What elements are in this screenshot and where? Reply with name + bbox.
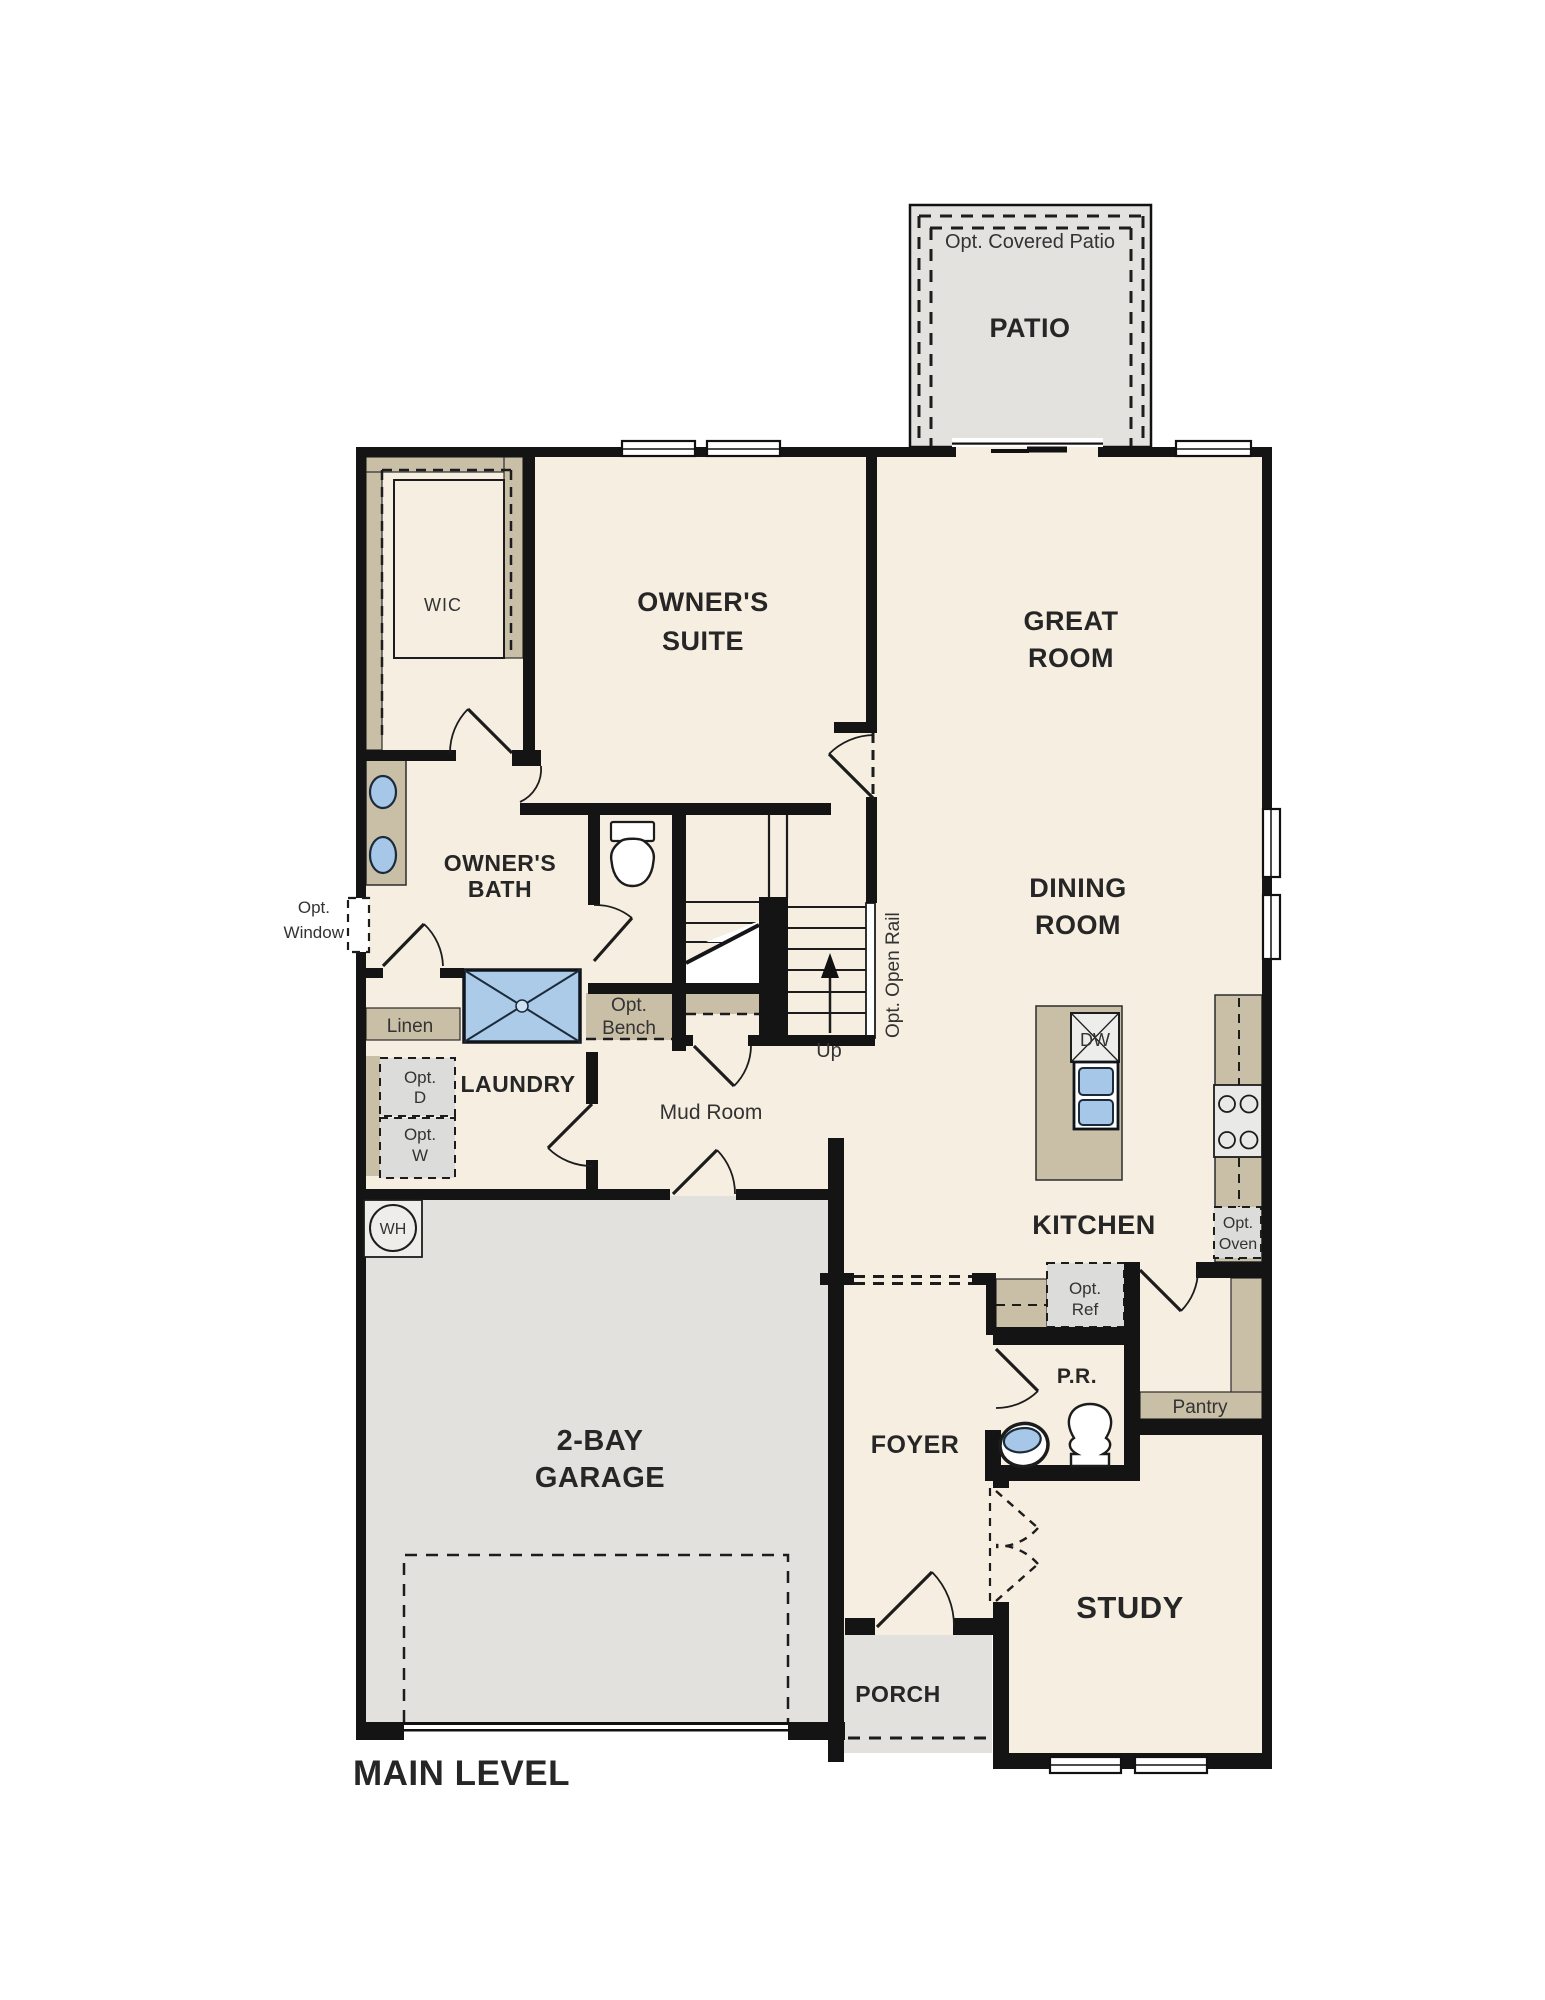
svg-text:Up: Up <box>816 1040 842 1062</box>
svg-text:WIC: WIC <box>424 595 462 615</box>
svg-text:Opt. Open Rail: Opt. Open Rail <box>883 912 904 1038</box>
svg-text:LAUNDRY: LAUNDRY <box>460 1071 575 1097</box>
svg-text:Opt.: Opt. <box>404 1125 436 1144</box>
svg-text:ROOM: ROOM <box>1035 910 1121 940</box>
svg-text:DINING: DINING <box>1029 873 1127 903</box>
svg-text:Opt.: Opt. <box>404 1068 436 1087</box>
svg-text:BATH: BATH <box>468 876 532 902</box>
svg-text:SUITE: SUITE <box>662 626 744 656</box>
svg-text:Window: Window <box>284 923 345 942</box>
svg-text:GARAGE: GARAGE <box>535 1462 665 1494</box>
svg-text:Opt.: Opt. <box>1069 1279 1101 1298</box>
svg-text:ROOM: ROOM <box>1028 643 1114 673</box>
svg-text:Ref: Ref <box>1072 1300 1099 1319</box>
svg-text:WH: WH <box>380 1221 407 1238</box>
svg-text:PORCH: PORCH <box>855 1681 941 1707</box>
svg-text:Opt.: Opt. <box>611 995 647 1016</box>
svg-text:Opt.: Opt. <box>298 898 330 917</box>
svg-text:FOYER: FOYER <box>871 1431 960 1459</box>
svg-text:KITCHEN: KITCHEN <box>1032 1210 1156 1240</box>
svg-text:Opt.: Opt. <box>1223 1215 1253 1232</box>
svg-text:MAIN LEVEL: MAIN LEVEL <box>353 1754 570 1793</box>
svg-text:Linen: Linen <box>387 1016 434 1037</box>
svg-text:P.R.: P.R. <box>1057 1365 1097 1388</box>
svg-text:W: W <box>412 1146 428 1165</box>
svg-text:Mud Room: Mud Room <box>660 1101 763 1124</box>
svg-text:Bench: Bench <box>602 1018 656 1039</box>
svg-text:Opt. Covered Patio: Opt. Covered Patio <box>945 231 1115 253</box>
svg-text:OWNER'S: OWNER'S <box>444 850 556 876</box>
svg-text:Pantry: Pantry <box>1173 1397 1228 1418</box>
svg-text:PATIO: PATIO <box>990 313 1071 343</box>
svg-text:D: D <box>414 1088 426 1107</box>
svg-text:GREAT: GREAT <box>1024 606 1119 636</box>
svg-text:Oven: Oven <box>1219 1236 1257 1253</box>
svg-text:OWNER'S: OWNER'S <box>637 587 768 617</box>
svg-text:2-BAY: 2-BAY <box>557 1425 644 1457</box>
svg-text:STUDY: STUDY <box>1076 1590 1184 1625</box>
svg-text:DW: DW <box>1080 1030 1110 1050</box>
